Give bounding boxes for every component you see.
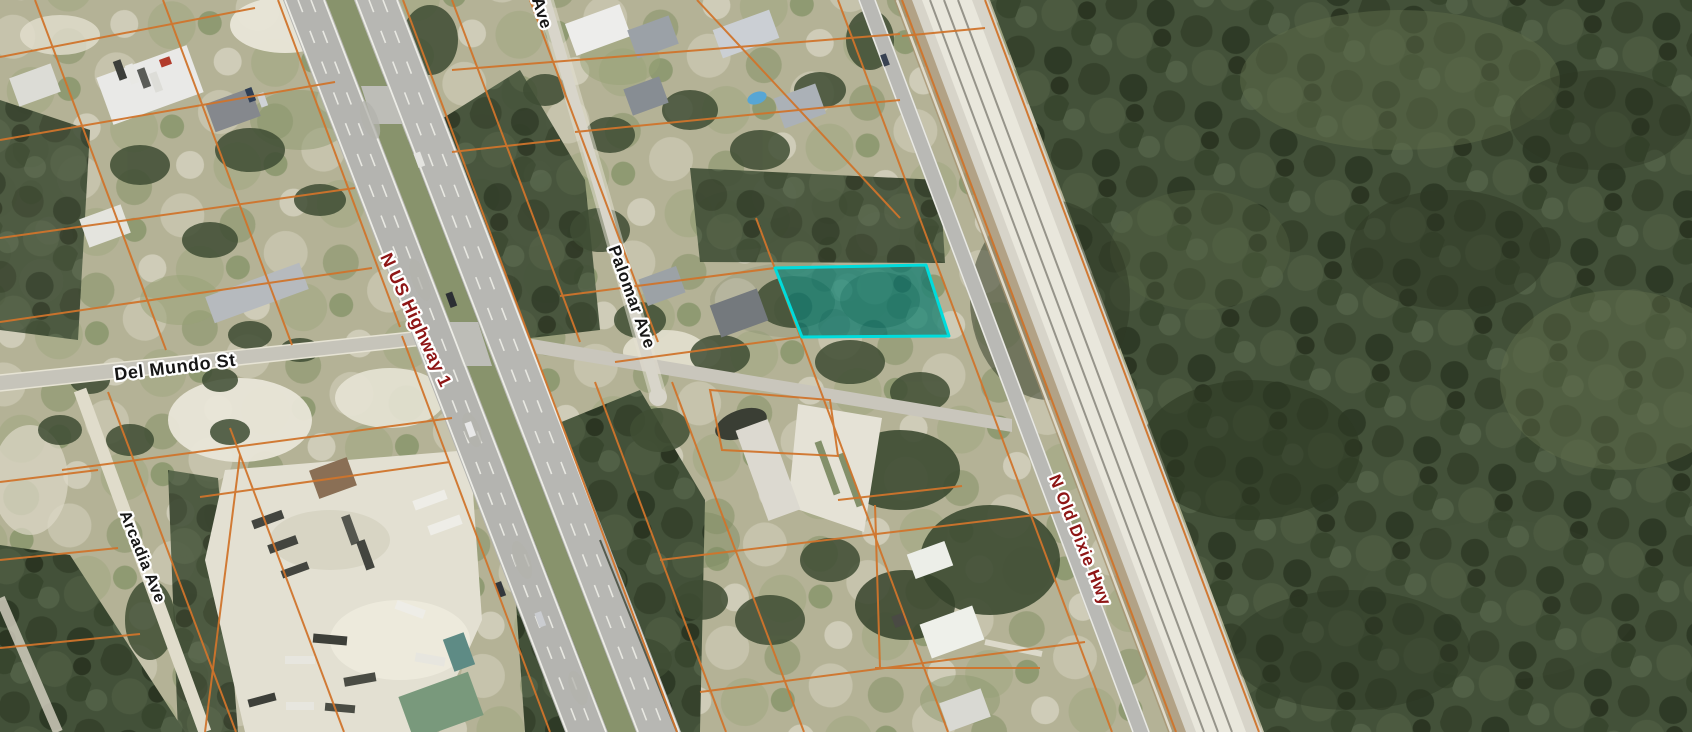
aerial-map[interactable]: Ave Palomar Ave Del Mundo St N US Highwa… xyxy=(0,0,1692,732)
selected-parcel-fill[interactable] xyxy=(775,265,949,337)
selected-parcel[interactable] xyxy=(775,265,949,337)
